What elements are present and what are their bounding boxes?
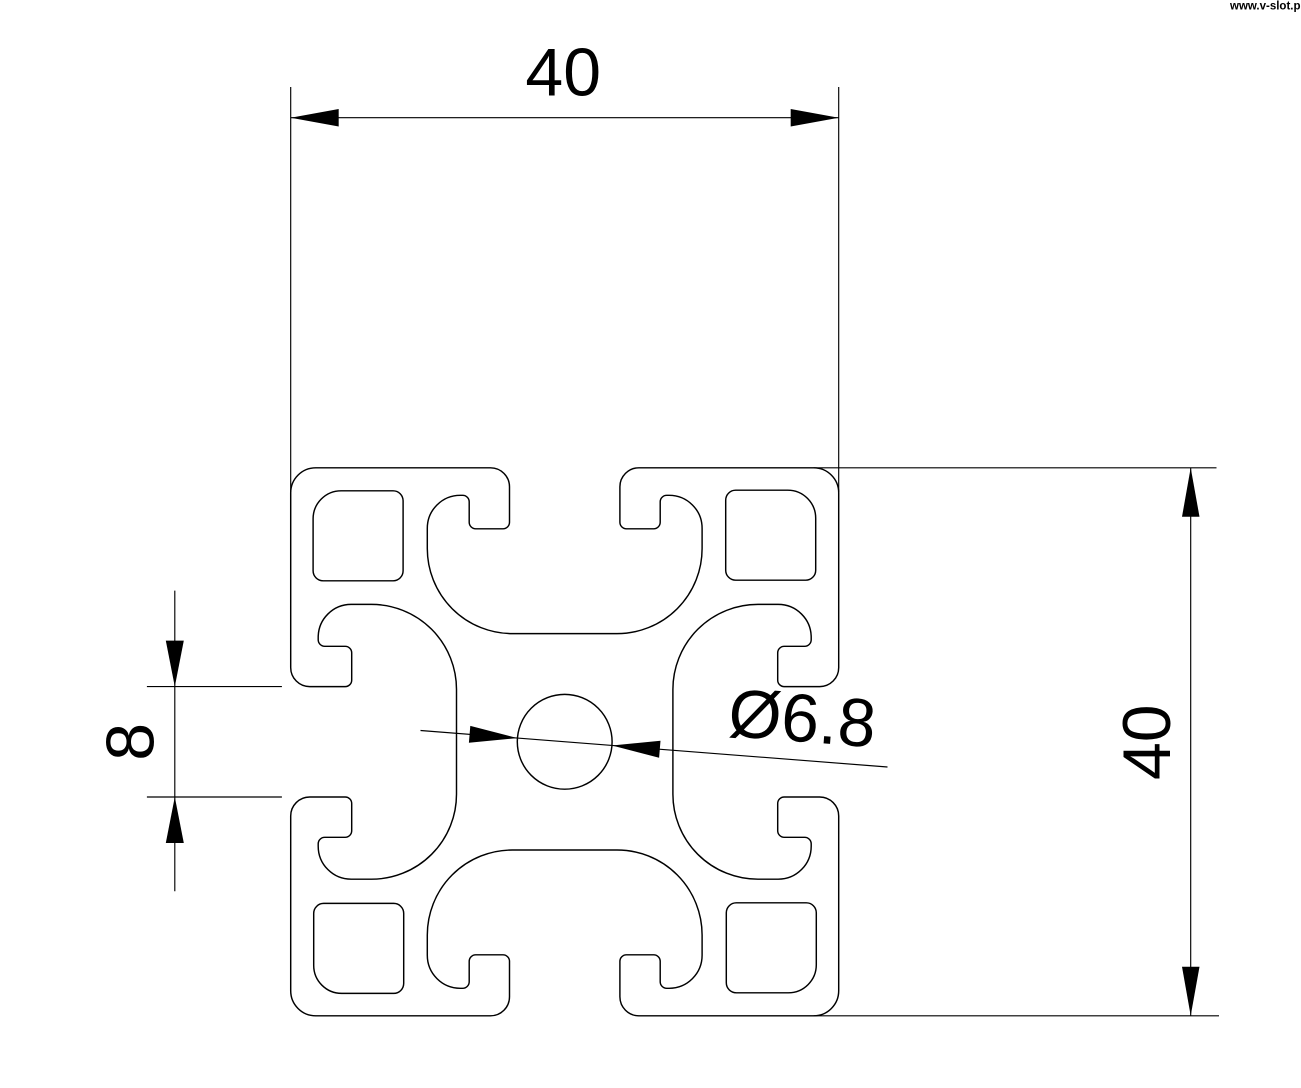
- svg-text:Ø6.8: Ø6.8: [726, 675, 879, 762]
- svg-text:40: 40: [525, 35, 601, 111]
- svg-text:40: 40: [1109, 704, 1185, 780]
- svg-text:8: 8: [93, 723, 169, 761]
- svg-text:www.v-slot.pl: www.v-slot.pl: [1229, 1, 1301, 13]
